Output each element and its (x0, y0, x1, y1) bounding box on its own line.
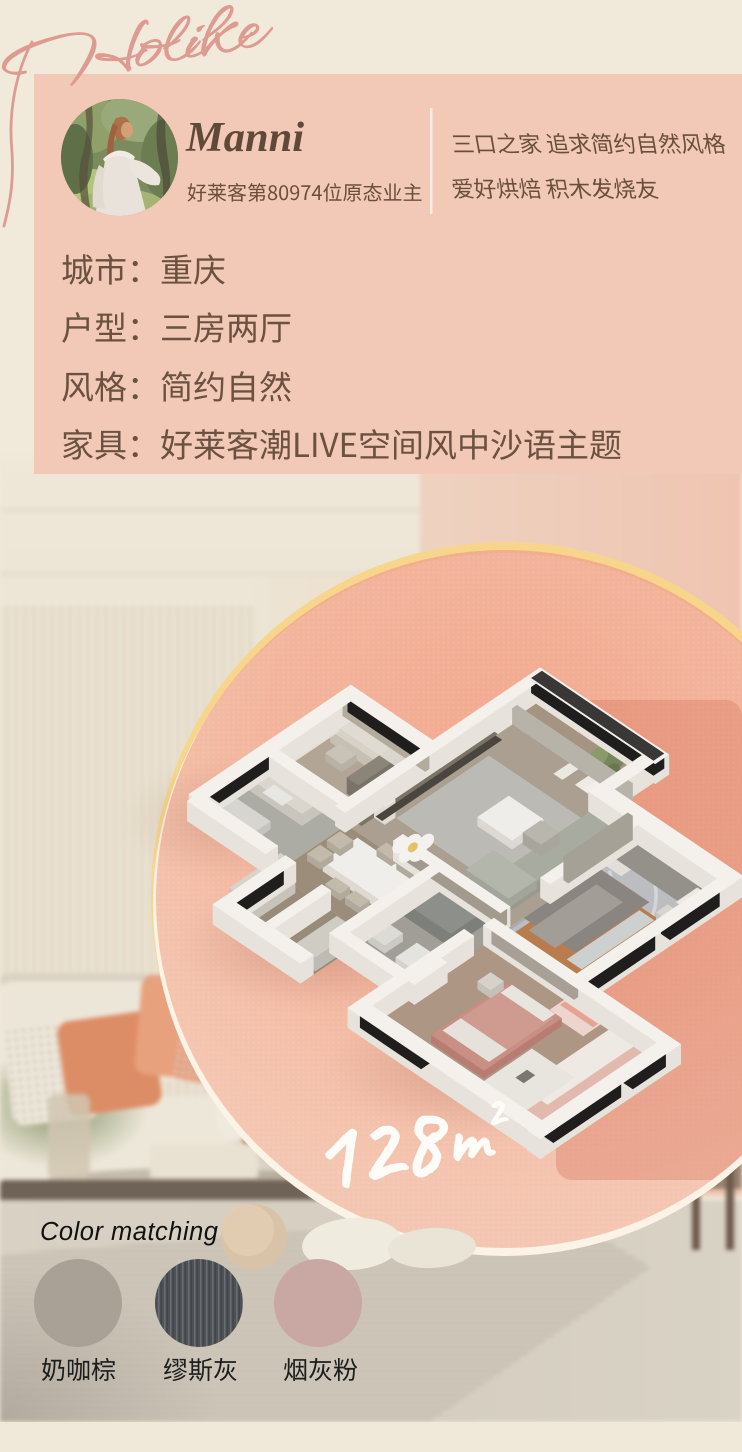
svg-text:Manni: Manni (185, 114, 304, 161)
svg-text:Color matching :: Color matching : (40, 1218, 234, 1246)
